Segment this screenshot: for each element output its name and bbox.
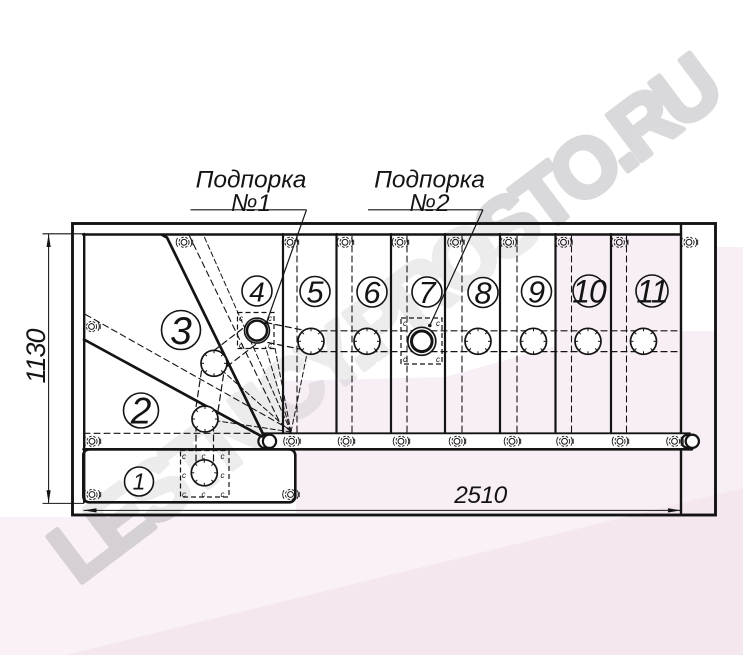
svg-text:c: c: [221, 452, 225, 461]
svg-text:c: c: [202, 452, 206, 461]
svg-text:c: c: [182, 471, 186, 480]
svg-text:8: 8: [474, 276, 492, 311]
svg-text:c: c: [403, 355, 407, 364]
svg-text:11: 11: [636, 274, 667, 310]
svg-text:7: 7: [418, 275, 437, 310]
svg-text:9: 9: [528, 275, 545, 310]
svg-text:№2: №2: [409, 190, 450, 217]
svg-text:5: 5: [306, 275, 324, 310]
svg-text:2: 2: [130, 391, 152, 432]
svg-text:10: 10: [572, 274, 607, 310]
svg-text:c: c: [239, 314, 243, 323]
svg-text:c: c: [436, 355, 440, 364]
svg-text:4: 4: [249, 277, 265, 308]
svg-text:c: c: [221, 490, 225, 499]
svg-text:c: c: [268, 341, 272, 350]
svg-text:c: c: [436, 319, 440, 328]
svg-text:1130: 1130: [21, 328, 51, 383]
svg-text:c: c: [403, 319, 407, 328]
svg-text:c: c: [239, 341, 243, 350]
svg-text:3: 3: [170, 310, 192, 353]
svg-text:6: 6: [363, 275, 381, 310]
svg-text:2510: 2510: [453, 482, 507, 509]
svg-text:c: c: [182, 452, 186, 461]
svg-text:1: 1: [133, 469, 146, 495]
svg-text:c: c: [202, 490, 206, 499]
svg-text:c: c: [182, 490, 186, 499]
svg-text:№1: №1: [231, 190, 271, 217]
svg-text:c: c: [221, 471, 225, 480]
